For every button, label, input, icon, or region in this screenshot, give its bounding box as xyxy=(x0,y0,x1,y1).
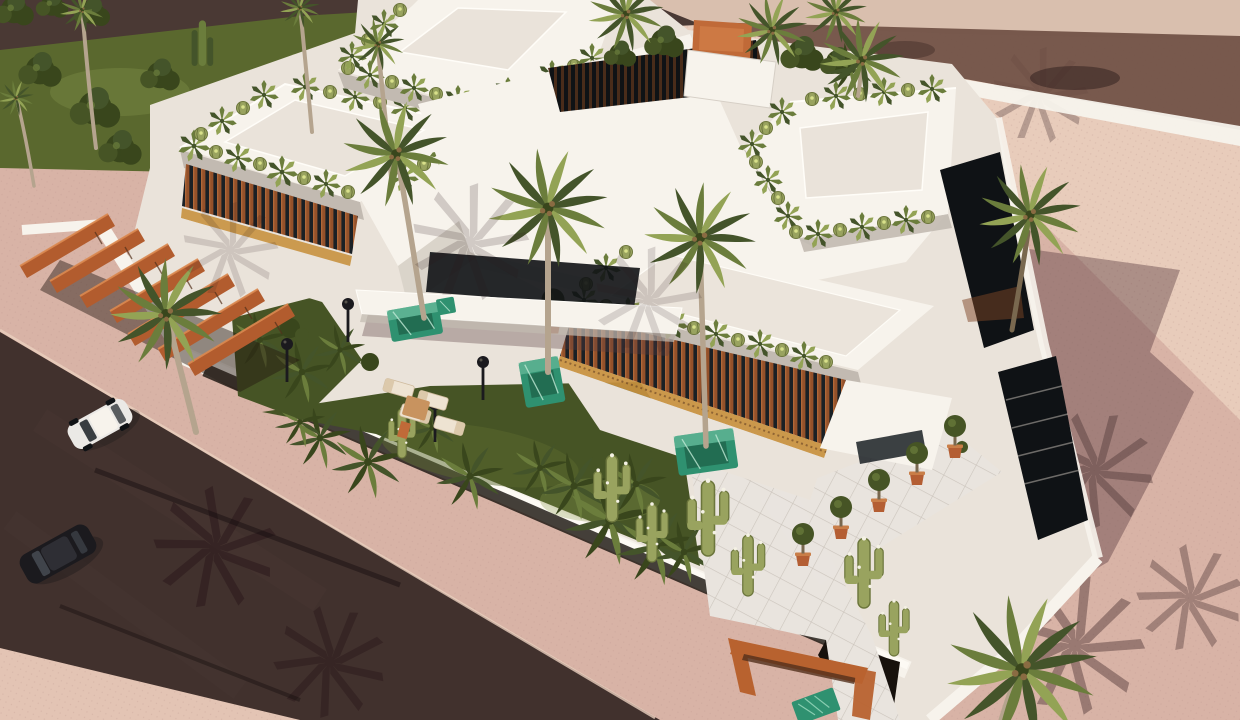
barrel-cactus xyxy=(342,186,355,199)
barrel-cactus xyxy=(902,84,915,97)
barrel-cactus xyxy=(772,192,785,205)
barrel-cactus xyxy=(324,86,337,99)
barrel-cactus xyxy=(254,158,267,171)
barrel-cactus xyxy=(790,226,803,239)
barrel-cactus xyxy=(210,146,223,159)
barrel-cactus xyxy=(834,224,847,237)
barrel-cactus xyxy=(820,356,833,369)
architectural-render xyxy=(0,0,1240,720)
barrel-cactus xyxy=(732,334,745,347)
roof-raised-panel xyxy=(800,112,928,198)
barrel-cactus xyxy=(760,122,773,135)
orange-feature-glow xyxy=(699,26,744,52)
render-canvas xyxy=(0,0,1240,720)
barrel-cactus xyxy=(298,172,311,185)
planter-body xyxy=(436,297,457,316)
barrel-cactus xyxy=(750,156,763,169)
barrel-cactus xyxy=(195,128,208,141)
barrel-cactus xyxy=(386,76,399,89)
barrel-cactus xyxy=(237,102,250,115)
marble-planter xyxy=(518,356,565,408)
topiary-ball xyxy=(361,353,379,371)
palm-shadow-on-wall xyxy=(1030,66,1120,90)
barrel-cactus xyxy=(394,4,407,17)
barrel-cactus xyxy=(806,93,819,106)
barrel-cactus xyxy=(878,217,891,230)
barrel-cactus xyxy=(776,344,789,357)
barrel-cactus xyxy=(922,211,935,224)
planter-soil xyxy=(527,370,557,398)
barrel-cactus xyxy=(620,246,633,259)
shrub xyxy=(36,0,68,18)
marble-planter xyxy=(436,297,457,316)
topiary-ball xyxy=(295,328,309,342)
